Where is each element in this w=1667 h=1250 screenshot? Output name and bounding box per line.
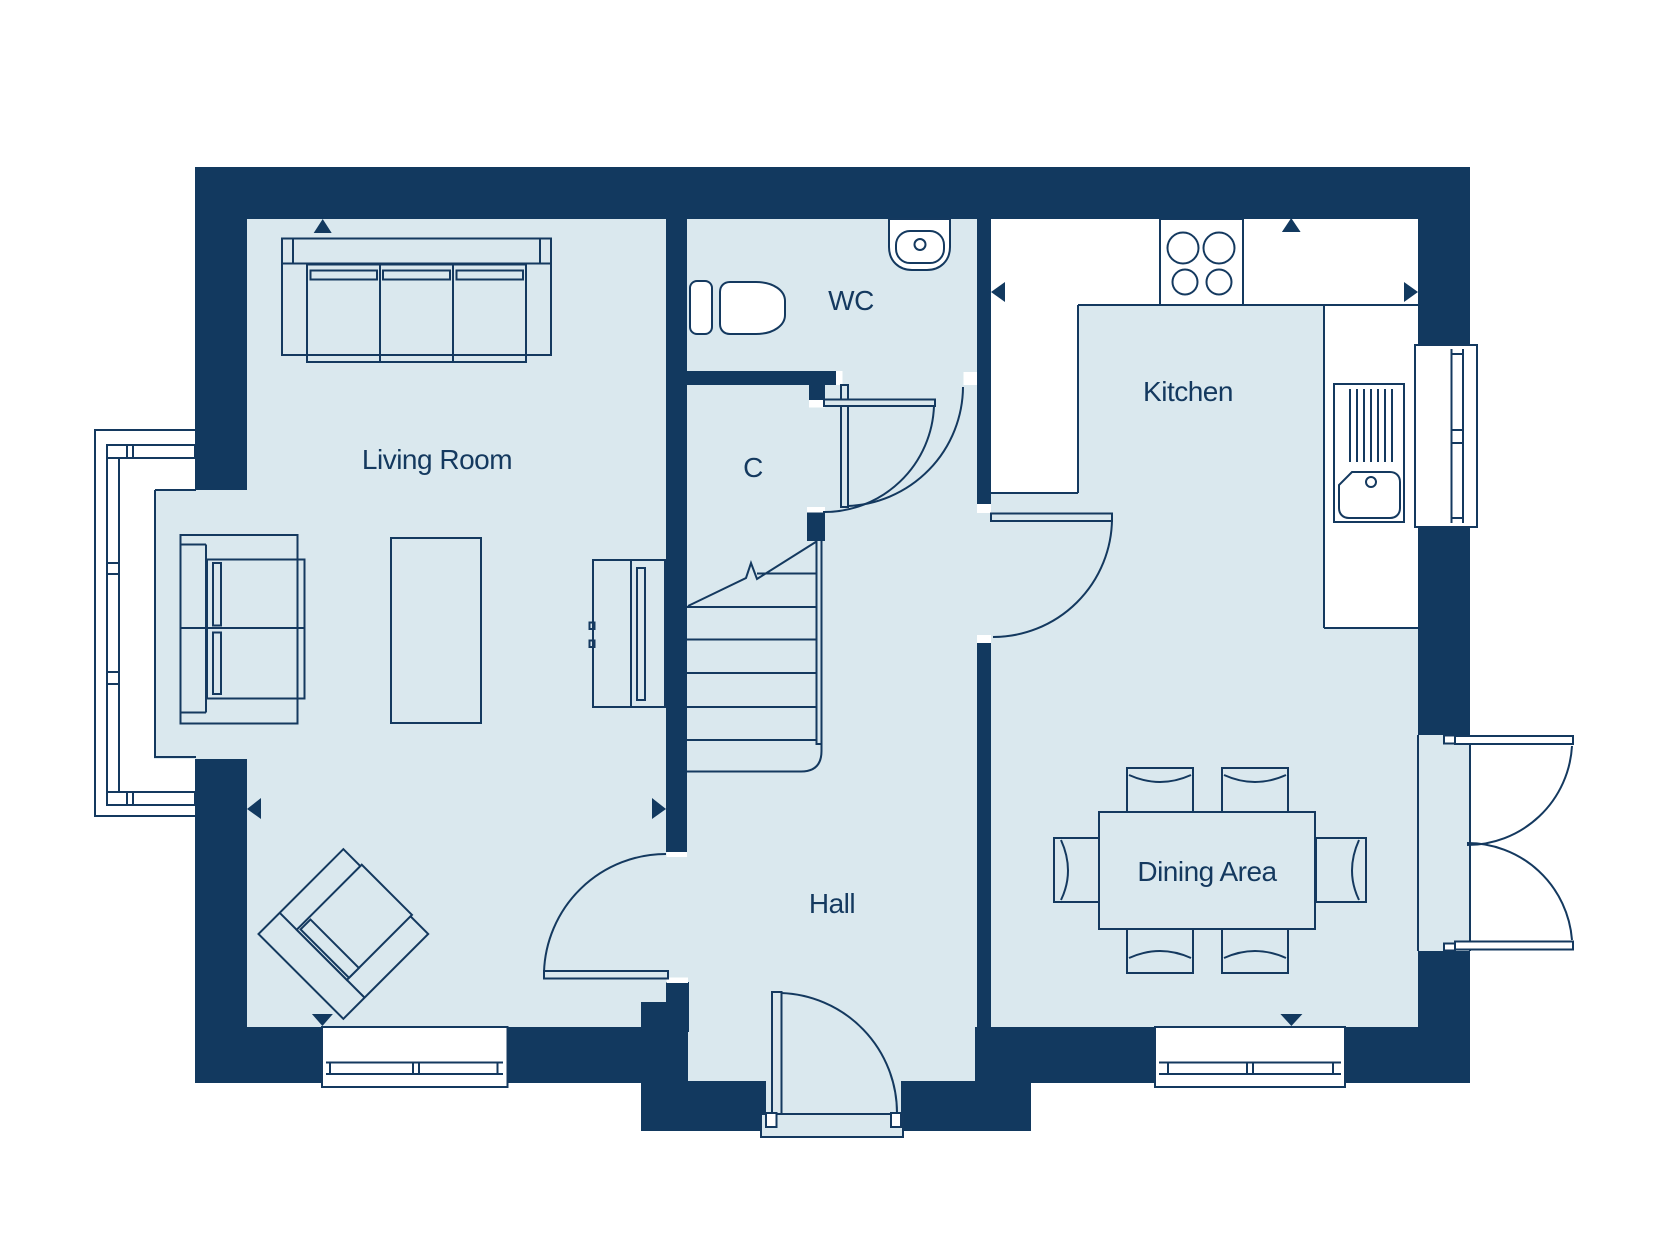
svg-text:WC: WC (828, 285, 874, 316)
svg-text:C: C (743, 452, 763, 483)
svg-text:Hall: Hall (809, 888, 855, 919)
svg-text:Dining Area: Dining Area (1137, 856, 1277, 887)
svg-text:Kitchen: Kitchen (1143, 376, 1233, 407)
svg-text:Living Room: Living Room (362, 444, 512, 475)
